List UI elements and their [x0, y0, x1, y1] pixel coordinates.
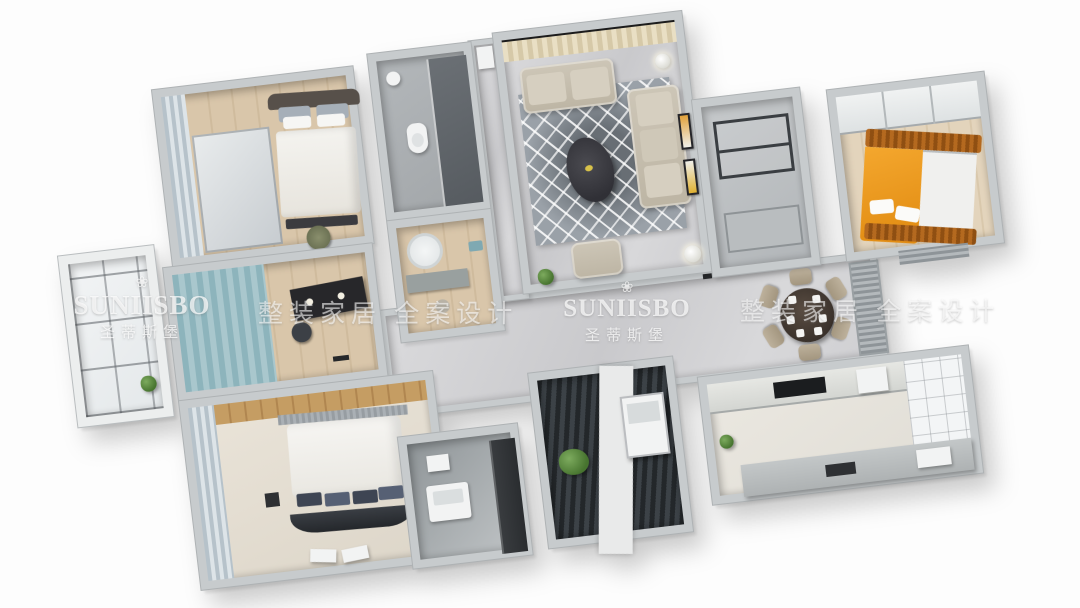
- storage-cabinet: [620, 392, 671, 459]
- dining-chair: [758, 284, 780, 310]
- sink: [386, 71, 402, 87]
- vanity-sink: [426, 482, 472, 523]
- pillow-dark: [378, 485, 404, 500]
- wardrobe-divider: [881, 92, 887, 130]
- basin: [432, 488, 463, 505]
- counter-bottom-run: [741, 438, 975, 497]
- cushion: [570, 66, 611, 100]
- room-study: [163, 243, 387, 401]
- plant: [537, 268, 555, 286]
- desk-chair: [291, 321, 313, 343]
- pillow-dark: [324, 492, 350, 507]
- lower-cabinet: [724, 204, 804, 253]
- plant: [558, 447, 591, 476]
- bed-kids: [860, 129, 982, 247]
- room-bathroom: [367, 42, 490, 221]
- shelf-unit: [713, 113, 795, 180]
- cushion: [643, 162, 683, 198]
- plate: [814, 327, 823, 336]
- fridge: [856, 366, 889, 393]
- dark-wardrobe: [489, 438, 528, 554]
- pillow-dark: [296, 492, 322, 507]
- plant: [140, 375, 158, 393]
- floor-lamp: [654, 53, 671, 70]
- floorplan-render: ❀ SUNIISBO 圣蒂斯堡 整装家居 全案设计 ❀ SUNIISBO 圣蒂斯…: [0, 0, 1080, 608]
- towel: [468, 240, 483, 252]
- cooktop: [773, 377, 827, 399]
- desk-cup: [337, 292, 345, 300]
- pillow: [283, 115, 312, 129]
- room-rear-balcony: [528, 357, 693, 549]
- table-decor: [584, 164, 593, 172]
- curved-footboard: [290, 505, 413, 535]
- room-living: [493, 11, 713, 294]
- plate: [788, 295, 797, 304]
- floor-lamp: [683, 244, 702, 263]
- toilet: [406, 122, 429, 154]
- plate: [818, 314, 827, 323]
- window-curtain: [188, 405, 234, 581]
- room-cloak-storage: [692, 88, 820, 278]
- wardrobe-divider: [929, 86, 935, 124]
- bed-guest: [271, 88, 365, 241]
- desk: [290, 276, 369, 321]
- kitchen-sink: [916, 446, 952, 468]
- mirror: [426, 454, 450, 472]
- round-mirror: [405, 231, 445, 271]
- teal-wardrobe-curtain: [172, 264, 277, 392]
- armchair: [570, 238, 624, 280]
- art-print: [680, 115, 692, 148]
- walkway: [599, 366, 634, 554]
- pillow: [869, 199, 894, 215]
- window-curtain-cream: [502, 20, 677, 62]
- entry-door: [476, 46, 494, 70]
- plate: [786, 316, 795, 325]
- art-print: [685, 161, 697, 194]
- room-guest-bedroom: [152, 66, 374, 267]
- cushion: [526, 71, 567, 105]
- cushion: [639, 127, 679, 163]
- plant: [719, 434, 735, 450]
- dining-chair: [798, 343, 822, 361]
- door-marker: [333, 355, 349, 362]
- balcony-bay-window: [58, 245, 174, 427]
- toilet-seat: [411, 132, 425, 147]
- room-vanity-nook: [387, 209, 505, 342]
- sliding-wardrobe: [851, 262, 887, 354]
- room-kids-bedroom: [827, 72, 1004, 261]
- counter-appliance: [825, 462, 856, 477]
- side-cube-table: [265, 492, 281, 508]
- magazine: [310, 549, 336, 563]
- dining-table: [777, 285, 837, 345]
- duvet: [276, 127, 362, 218]
- apartment-plan: [89, 8, 1021, 599]
- stool: [435, 299, 451, 315]
- magazine: [341, 545, 369, 563]
- pillow-dark: [352, 489, 378, 504]
- cabinet-door: [626, 400, 660, 424]
- vanity-counter: [406, 268, 470, 293]
- mirror-wardrobe: [192, 127, 283, 253]
- kids-wardrobe: [836, 81, 982, 136]
- plate: [812, 295, 821, 304]
- cushion: [635, 91, 675, 127]
- room-bathroom-2: [398, 423, 533, 568]
- shelf: [719, 142, 789, 153]
- pillow: [317, 113, 346, 127]
- bed-master: [282, 405, 414, 543]
- louvered-vent: [898, 243, 969, 265]
- desk-cup: [306, 298, 314, 306]
- dining-chair: [789, 267, 813, 285]
- plate: [796, 329, 805, 338]
